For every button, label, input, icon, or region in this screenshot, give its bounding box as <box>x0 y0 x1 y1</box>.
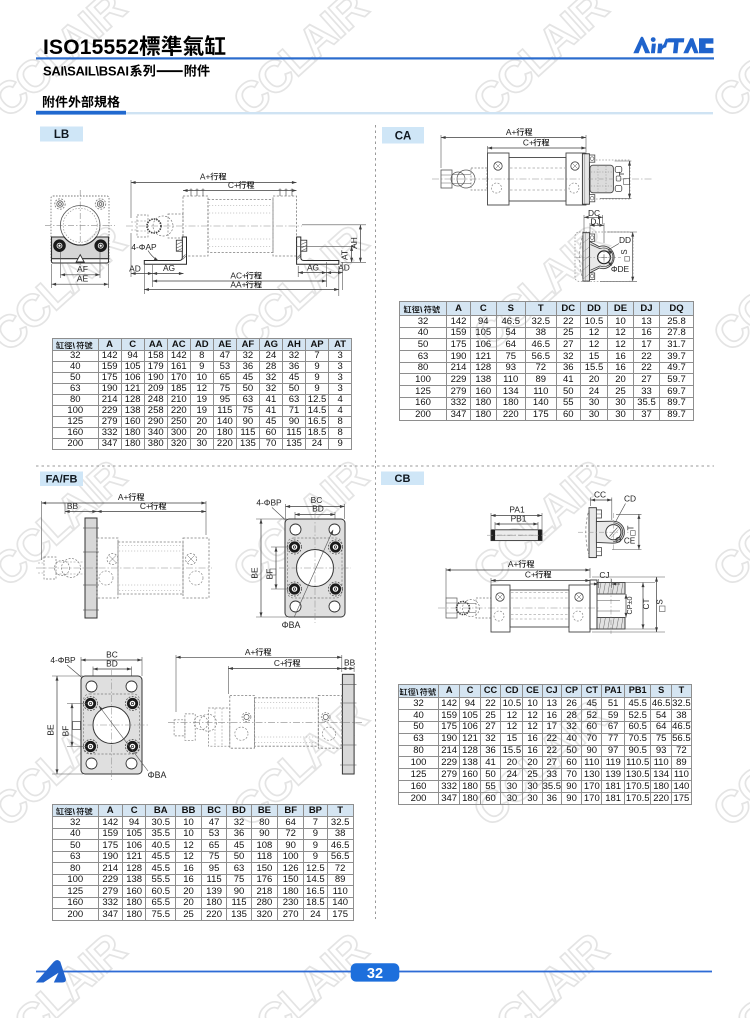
svg-text:\: \ <box>420 306 423 315</box>
svg-text:\: \ <box>73 808 76 817</box>
svg-text:\: \ <box>416 688 419 697</box>
svg-text:\: \ <box>73 342 76 351</box>
